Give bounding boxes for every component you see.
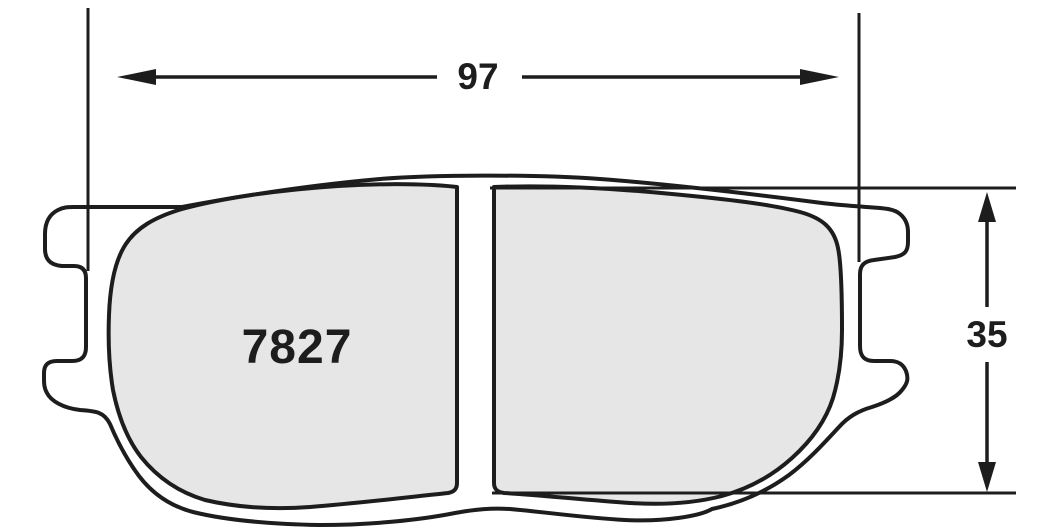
brake-pad-technical-drawing: 97 35 7827 <box>0 0 1044 528</box>
width-arrow-right <box>800 69 839 85</box>
height-arrow-down <box>978 462 996 492</box>
drawing-canvas: 97 35 7827 <box>0 0 1044 528</box>
height-arrow-up <box>978 192 996 222</box>
width-arrow-left <box>117 69 156 85</box>
friction-pad-right <box>494 186 842 503</box>
part-number-label: 7827 <box>242 321 353 374</box>
width-dimension-value: 97 <box>457 56 498 97</box>
height-dimension-value: 35 <box>966 314 1007 355</box>
